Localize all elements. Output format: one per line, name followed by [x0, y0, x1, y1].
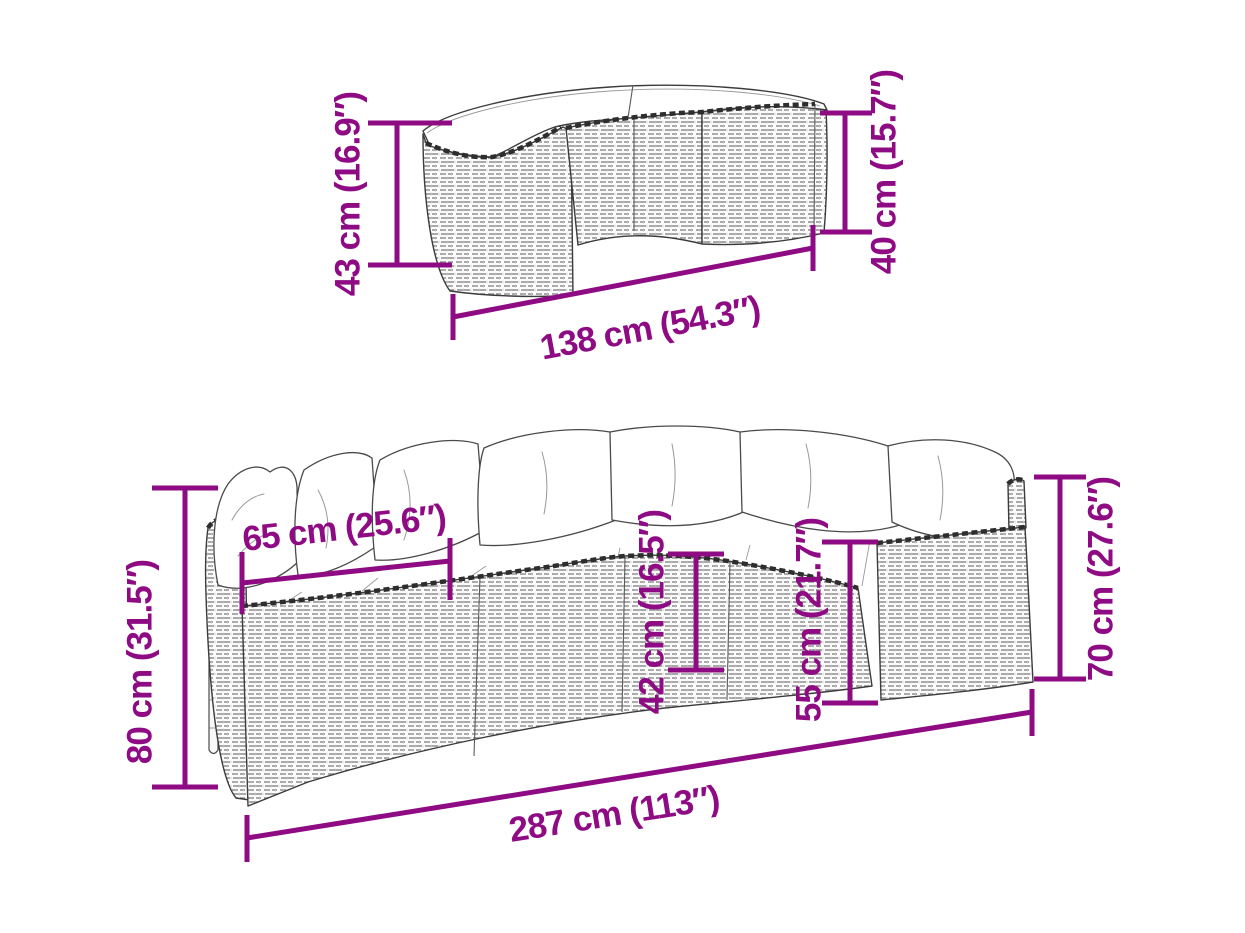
dim-label-sofa-back-height: 55 cm (21.7″)	[792, 518, 827, 722]
sofa-right-arm	[877, 527, 1033, 700]
dimension-diagram: 43 cm (16.9″) 40 cm (15.7″) 138 cm (54.3…	[0, 0, 1245, 933]
dim-label-table-height-left: 43 cm (16.9″)	[331, 92, 366, 296]
dim-label-table-height-right: 40 cm (15.7″)	[867, 70, 902, 274]
dim-label-sofa-height-left: 80 cm (31.5″)	[123, 560, 158, 764]
dim-label-sofa-arm-height: 70 cm (27.6″)	[1084, 477, 1119, 681]
back-cushion-6	[740, 430, 900, 532]
curved-table-drawing	[423, 85, 827, 296]
sofa-right-post	[1008, 479, 1026, 532]
dim-sofa-arm-height-line	[1034, 477, 1086, 679]
half-round-sofa-drawing	[206, 426, 1033, 806]
back-cushion-5	[610, 426, 748, 526]
table-right-wall	[702, 104, 827, 245]
back-cushion-7	[888, 440, 1014, 540]
sofa-front-band	[242, 555, 872, 806]
dim-label-sofa-seat-height: 42 cm (16.5″)	[635, 510, 670, 714]
